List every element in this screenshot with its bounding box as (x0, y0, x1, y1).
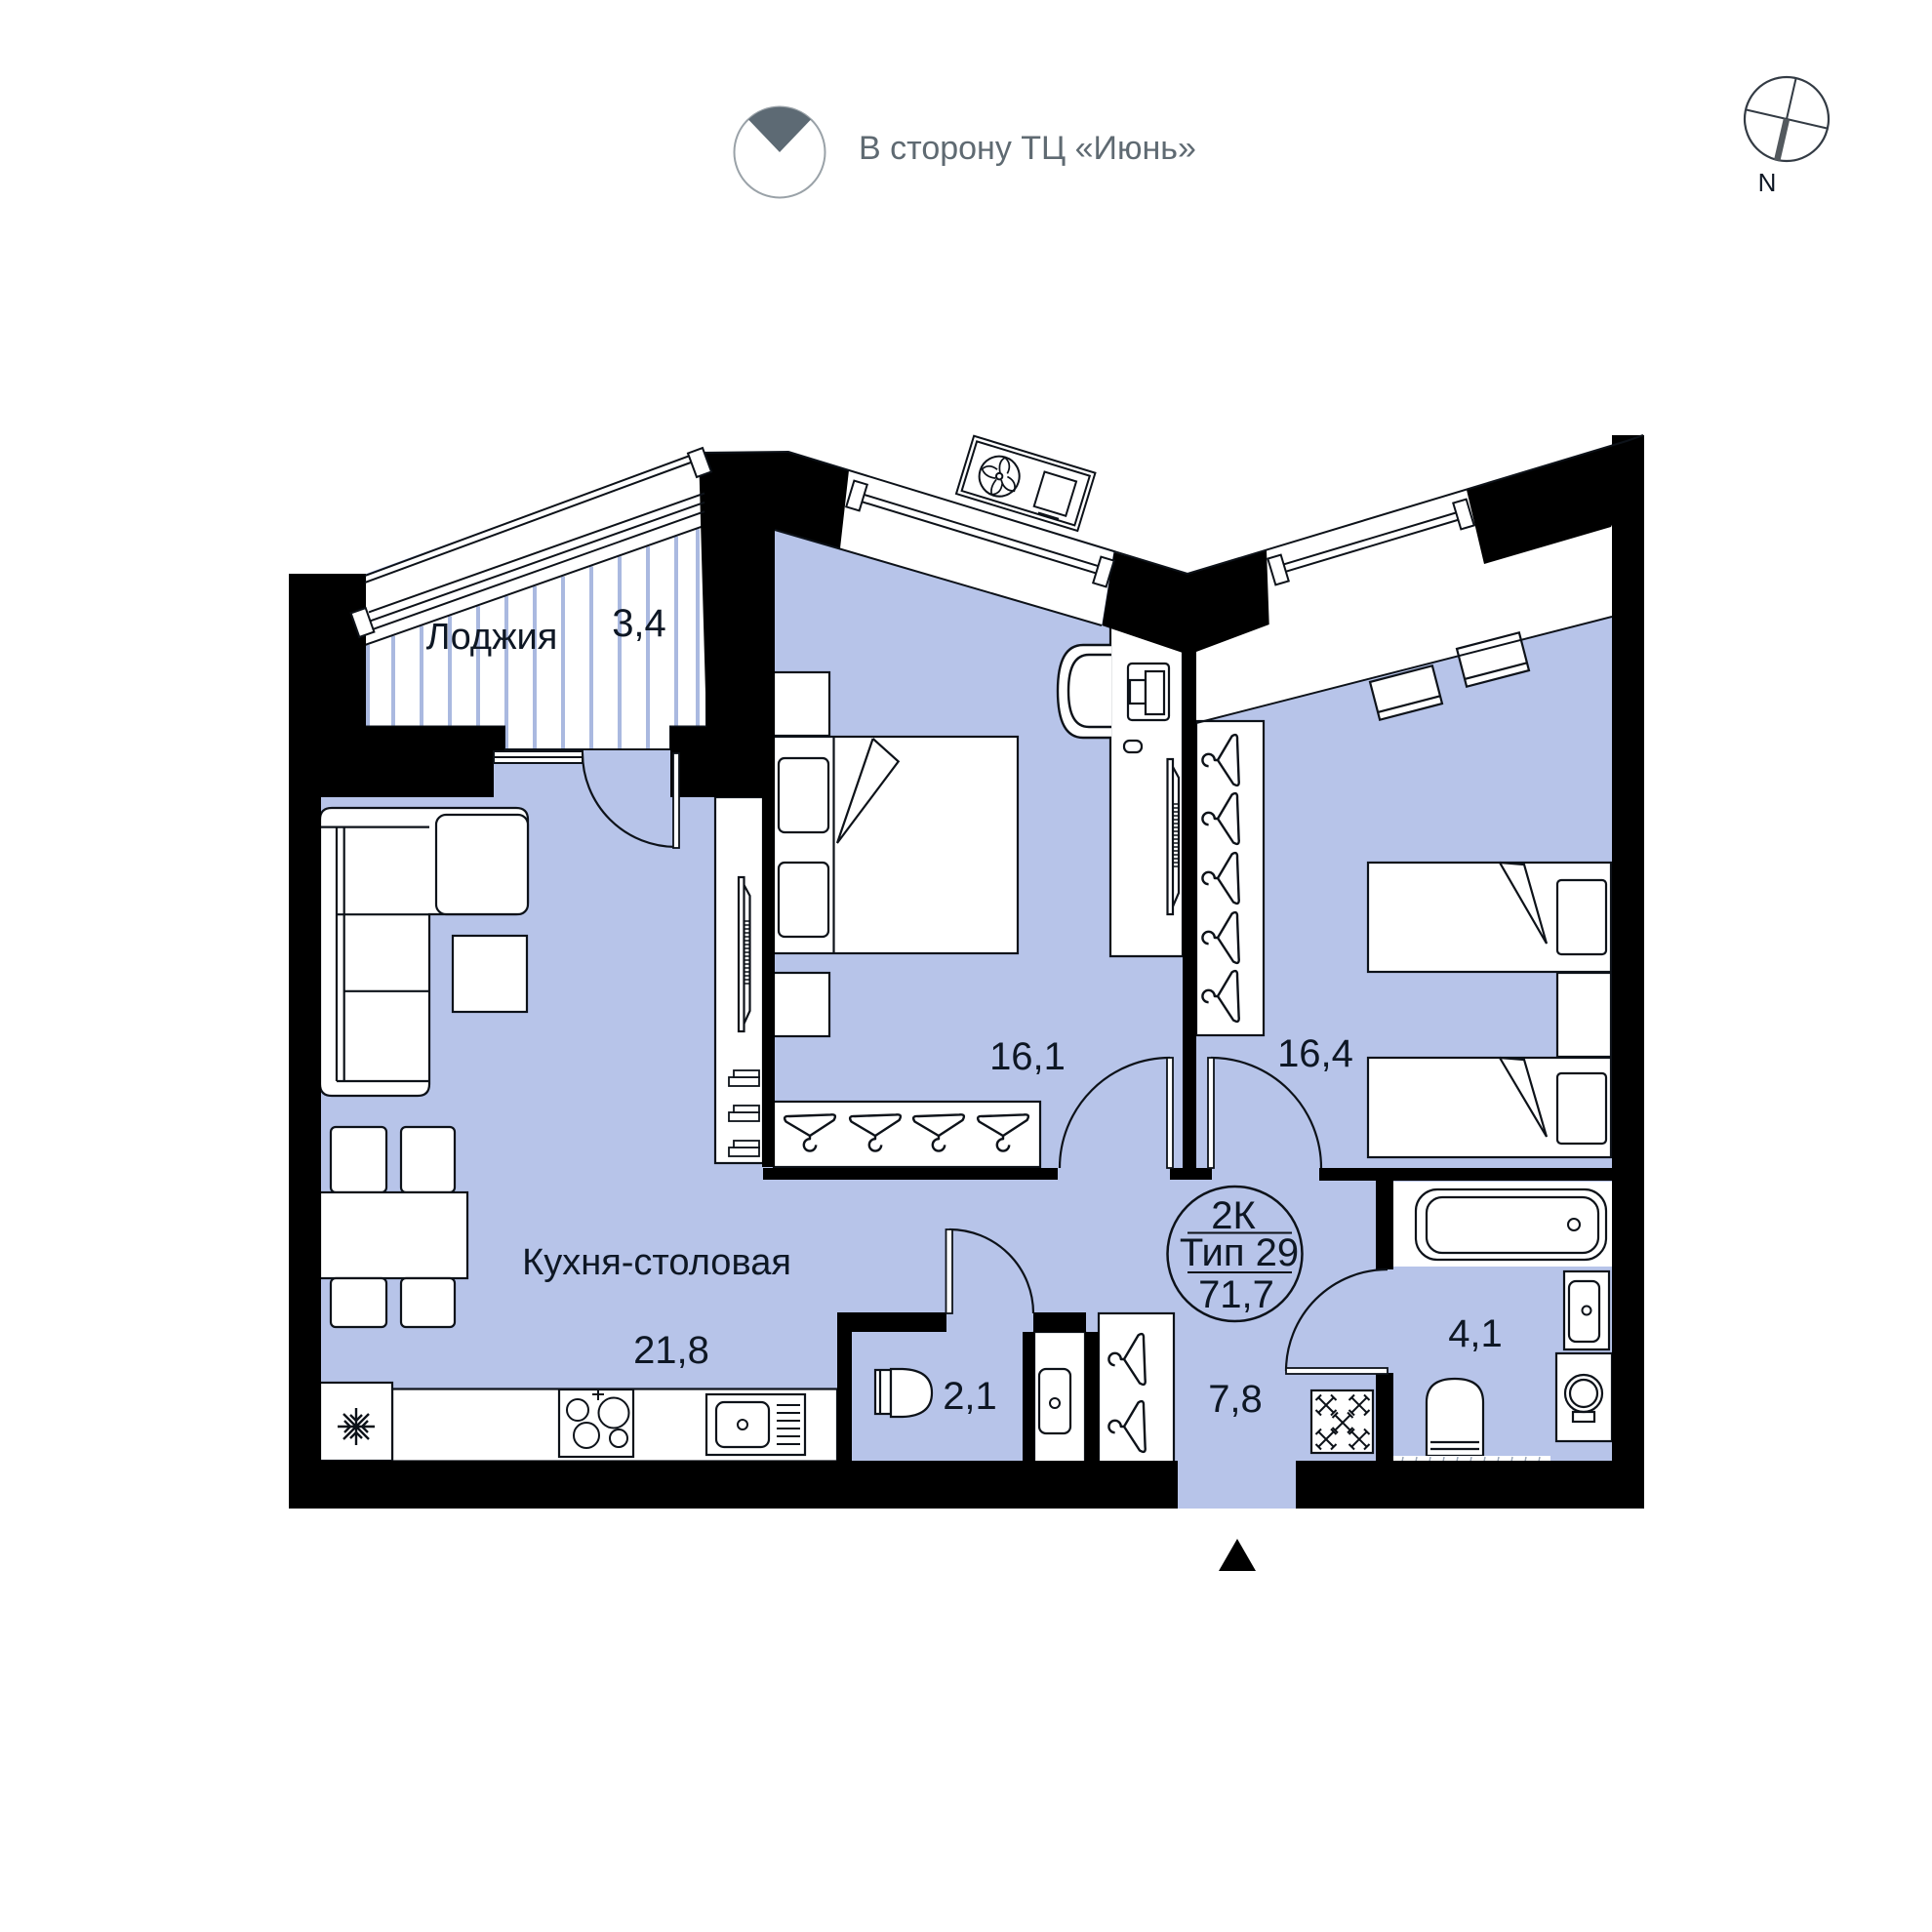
svg-text:71,7: 71,7 (1198, 1273, 1274, 1316)
svg-text:Лоджия: Лоджия (426, 617, 558, 658)
svg-text:Кухня-столовая: Кухня-столовая (522, 1242, 791, 1283)
svg-text:Тип 29: Тип 29 (1180, 1231, 1299, 1274)
svg-text:В сторону ТЦ «Июнь»: В сторону ТЦ «Июнь» (859, 130, 1196, 167)
svg-text:16,1: 16,1 (989, 1035, 1066, 1078)
svg-text:16,4: 16,4 (1277, 1032, 1353, 1075)
svg-text:4,1: 4,1 (1448, 1312, 1503, 1355)
svg-text:3,4: 3,4 (612, 602, 666, 645)
svg-text:7,8: 7,8 (1208, 1378, 1263, 1421)
svg-text:N: N (1758, 168, 1777, 197)
svg-text:21,8: 21,8 (633, 1329, 709, 1372)
svg-text:2,1: 2,1 (943, 1375, 997, 1418)
